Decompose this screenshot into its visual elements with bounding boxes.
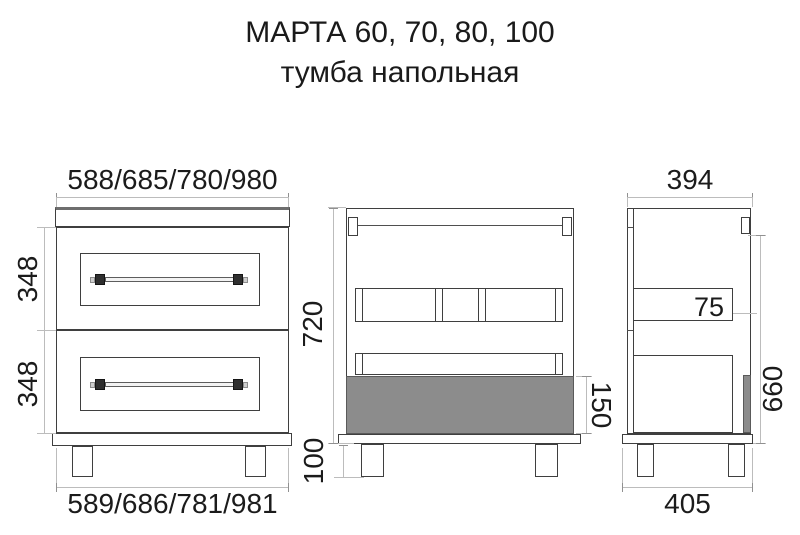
mounting-bracket <box>348 217 358 236</box>
plinth <box>52 433 292 446</box>
dim-front-top-width: 588/685/780/980 <box>56 166 289 194</box>
upper-stretcher-rail <box>355 288 563 322</box>
handle-end-cap <box>95 274 105 285</box>
handle-nub <box>243 382 248 388</box>
dim-line <box>343 445 344 478</box>
dim-side-top-depth: 394 <box>627 166 753 194</box>
handle-nub <box>243 277 248 283</box>
leg <box>637 444 654 477</box>
dim-tick <box>756 443 765 444</box>
rail-post <box>555 288 563 322</box>
technical-drawing: МАРТА 60, 70, 80, 100 тумба напольная 58… <box>0 0 800 535</box>
rail-post <box>478 288 486 322</box>
extension-line <box>288 197 289 207</box>
dim-lower-drawer-height: 348 <box>14 349 42 419</box>
extension-line <box>334 477 364 478</box>
rail-post <box>355 353 363 375</box>
dim-side-height: 660 <box>759 354 787 424</box>
extension-line <box>37 330 56 331</box>
extension-line <box>733 313 757 314</box>
extension-line <box>37 433 56 434</box>
handle-end-cap <box>233 274 243 285</box>
dim-line <box>333 208 334 443</box>
handle-end-cap <box>95 379 105 390</box>
leg <box>535 444 558 477</box>
dim-side-bottom-depth: 405 <box>622 490 753 518</box>
leg <box>72 446 93 477</box>
lower-stretcher-rail <box>355 353 563 375</box>
back-rail-line <box>358 225 562 226</box>
dim-upper-drawer-height: 348 <box>14 244 42 314</box>
mounting-bracket <box>562 217 572 236</box>
drawing-title: МАРТА 60, 70, 80, 100 <box>0 16 800 49</box>
leg <box>361 444 384 477</box>
rail-post <box>355 288 363 322</box>
handle-bar <box>105 277 234 282</box>
cabinet-top-panel <box>55 207 290 227</box>
gray-panel-side <box>743 375 751 433</box>
dim-tick <box>329 208 338 209</box>
mounting-bracket <box>741 217 750 234</box>
extension-line <box>37 227 56 228</box>
leg <box>245 446 266 477</box>
dim-line <box>56 197 289 198</box>
handle-end-cap <box>233 379 243 390</box>
extension-line <box>56 197 57 207</box>
dim-tick <box>329 443 338 444</box>
extension-line <box>627 197 628 207</box>
drawer-box-side <box>633 355 733 433</box>
dim-line <box>627 197 753 198</box>
dim-tick <box>756 235 765 236</box>
plinth <box>622 434 753 444</box>
dim-gray-panel-height: 150 <box>587 370 615 440</box>
dim-body-height: 720 <box>299 289 327 359</box>
dim-tick <box>339 445 348 446</box>
handle-bar <box>105 382 234 387</box>
extension-line <box>752 197 753 207</box>
gray-drawer-panel <box>346 376 574 434</box>
drawing-subtitle: тумба напольная <box>0 56 800 89</box>
dim-front-bottom-width: 589/686/781/981 <box>56 490 289 518</box>
rail-post <box>435 288 443 322</box>
leg <box>728 444 745 477</box>
rail-post <box>555 353 563 375</box>
dim-rail-height: 75 <box>688 293 730 321</box>
dim-leg-height: 100 <box>300 426 328 496</box>
plinth <box>338 434 581 444</box>
